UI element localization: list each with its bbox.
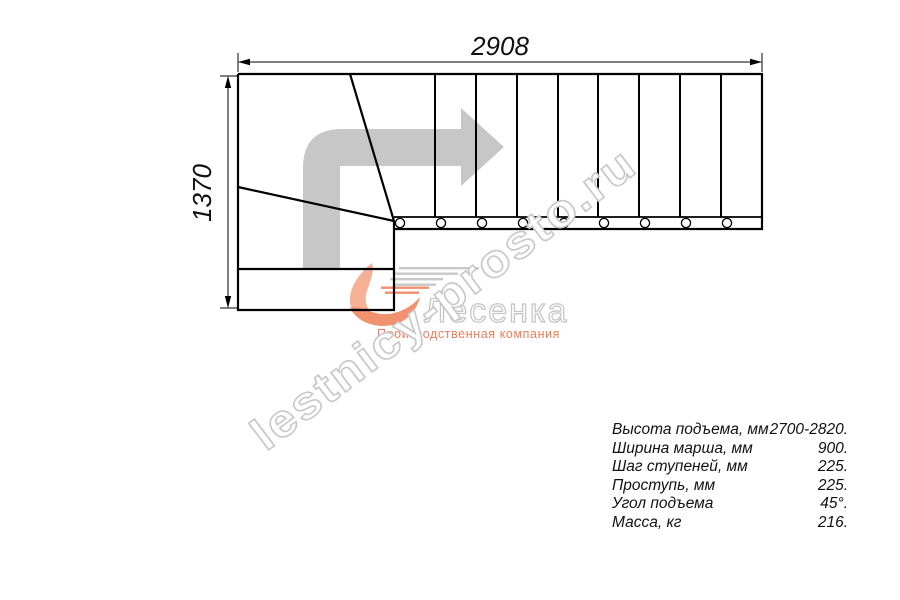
spec-label: Шаг ступеней, мм <box>612 458 748 477</box>
dim-arrow-up-icon <box>225 76 231 88</box>
spec-row-rise-angle: Угол подъема 45°. <box>612 495 848 514</box>
spec-label: Проступь, мм <box>612 477 715 496</box>
dim-arrow-down-icon <box>225 296 231 308</box>
watermark-text: lestnicy-prosto.ru <box>241 137 646 460</box>
spec-label: Угол подъема <box>612 495 713 514</box>
spec-row-tread-depth: Проступь, мм 225. <box>612 477 848 496</box>
dimension-height-label: 1370 <box>187 164 217 222</box>
dimension-width-label: 2908 <box>470 31 529 61</box>
spec-label: Высота подъема, мм <box>612 421 769 440</box>
spec-row-mass: Масса, кг 216. <box>612 514 848 533</box>
dim-arrow-left-icon <box>238 59 250 65</box>
dimension-width: 2908 <box>238 31 762 72</box>
spec-label: Масса, кг <box>612 514 681 533</box>
spec-value: 225. <box>818 477 848 496</box>
spec-value: 2700-2820. <box>770 421 848 440</box>
spec-value: 900. <box>818 440 848 459</box>
stair-drawing-page: Лесенка Производственная компания <box>0 0 900 600</box>
spec-value: 45°. <box>820 495 848 514</box>
dim-arrow-right-icon <box>750 59 762 65</box>
spec-row-rise-height: Высота подъема, мм 2700-2820. <box>612 421 848 440</box>
spec-value: 225. <box>818 458 848 477</box>
spec-row-flight-width: Ширина марша, мм 900. <box>612 440 848 459</box>
spec-label: Ширина марша, мм <box>612 440 753 459</box>
specs-table: Высота подъема, мм 2700-2820. Ширина мар… <box>612 421 848 532</box>
spec-value: 216. <box>818 514 848 533</box>
spec-row-step-pitch: Шаг ступеней, мм 225. <box>612 458 848 477</box>
dimension-height: 1370 <box>187 76 237 308</box>
